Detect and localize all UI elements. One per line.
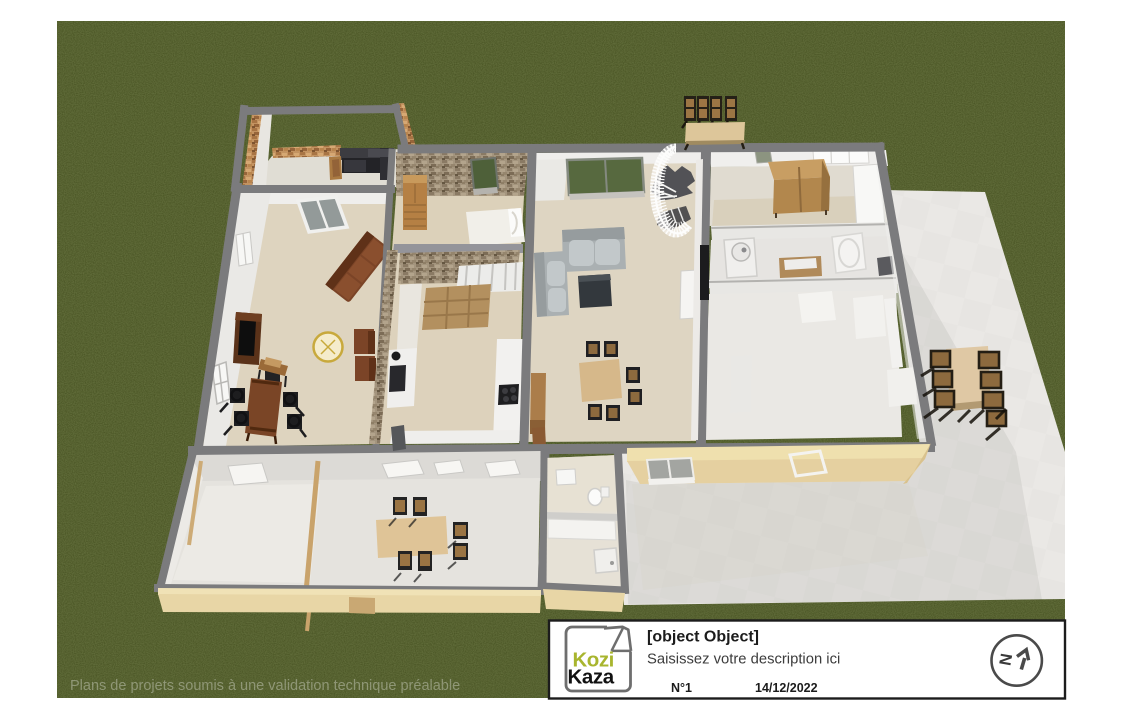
svg-text:Kaza: Kaza [568, 666, 615, 689]
svg-text:N°1: N°1 [671, 681, 692, 695]
svg-text:14/12/2022: 14/12/2022 [755, 681, 818, 695]
svg-text:Plans de projets soumis à une: Plans de projets soumis à une validation… [70, 678, 460, 694]
svg-text:Saisissez votre description ic: Saisissez votre description ici [647, 652, 840, 668]
svg-text:[object Object]: [object Object] [647, 629, 759, 646]
